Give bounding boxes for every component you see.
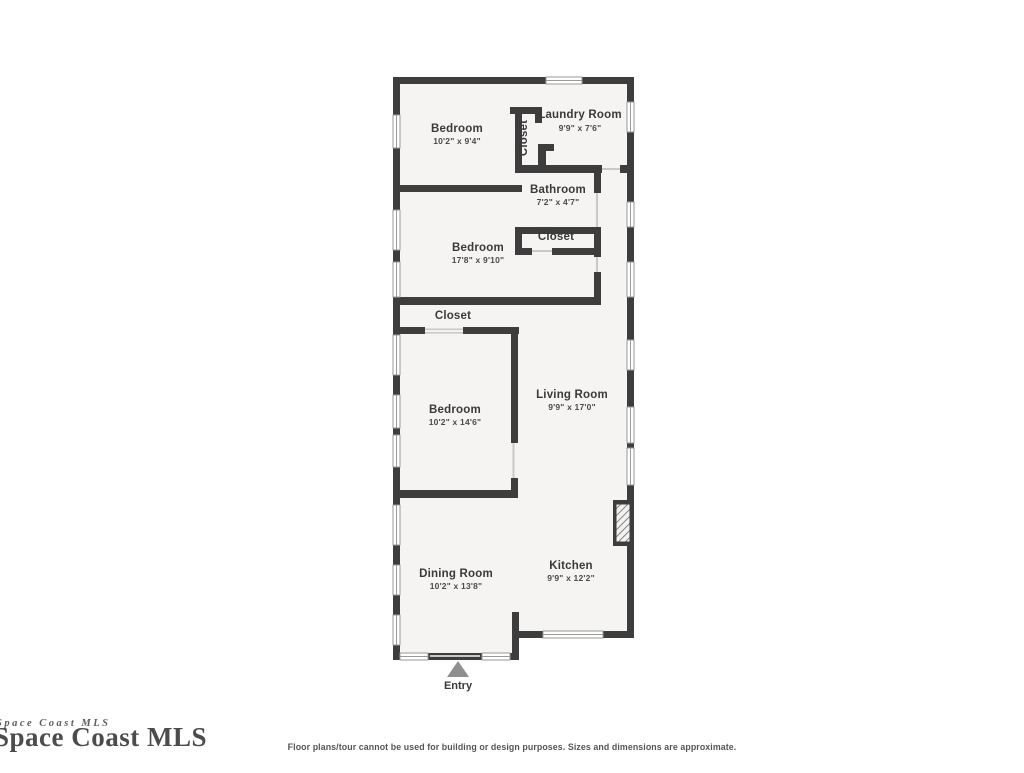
door-entry-threshold: [430, 655, 480, 657]
door-bedroom3: [513, 443, 515, 478]
wall-bed2-bottom: [393, 297, 601, 305]
window: [627, 102, 634, 132]
window: [393, 565, 400, 595]
window: [627, 448, 634, 485]
wall-bathroom-top-stub: [620, 165, 634, 173]
door-bed3-closet-a: [425, 329, 463, 331]
room-dims-bedroom1: 10'2" x 9'4": [433, 136, 481, 146]
wall-hallcloset-bottom-a: [515, 248, 532, 255]
room-label-bedroom3: Bedroom: [429, 404, 481, 416]
room-label-living: Living Room: [536, 389, 608, 401]
room-dims-living: 9'9" x 17'0": [548, 402, 596, 412]
window: [482, 653, 510, 660]
room-label-bathroom: Bathroom: [530, 184, 586, 196]
window: [627, 340, 634, 370]
window: [393, 262, 400, 297]
room-label-dining: Dining Room: [419, 568, 493, 580]
window: [627, 202, 634, 227]
wall-bed3-bottom: [393, 490, 518, 498]
disclaimer-text: Floor plans/tour cannot be used for buil…: [0, 742, 1024, 752]
window: [393, 115, 400, 148]
wall-dining-kitchen-divider: [512, 612, 519, 660]
wall-hall-right-a: [594, 227, 601, 257]
window: [393, 395, 400, 428]
window: [393, 615, 400, 645]
floor-plan-canvas: Bedroom 10'2" x 9'4" Laundry Room 9'9" x…: [0, 0, 1024, 768]
room-label-bed3-closet: Closet: [435, 310, 471, 322]
room-dims-bedroom2: 17'8" x 9'10": [452, 255, 505, 265]
room-dims-bedroom3: 10'2" x 14'6": [429, 417, 482, 427]
room-label-kitchen: Kitchen: [549, 560, 593, 572]
door-bed3-closet-b: [425, 332, 463, 334]
door-laundry: [602, 168, 620, 170]
room-dims-kitchen: 9'9" x 12'2": [547, 573, 595, 583]
wall-top: [393, 77, 634, 84]
window: [393, 335, 400, 375]
window: [627, 262, 634, 297]
window: [393, 435, 400, 467]
wall-bathroom-right: [594, 165, 601, 193]
window: [627, 407, 634, 443]
room-label-bedroom1: Bedroom: [431, 123, 483, 135]
room-label-laundry: Laundry Room: [538, 109, 622, 121]
floor-plan-page: Bedroom 10'2" x 9'4" Laundry Room 9'9" x…: [0, 0, 1024, 768]
entry-label: Entry: [444, 680, 473, 692]
room-label-laundry-closet: Closet: [518, 120, 530, 156]
window: [393, 505, 400, 545]
room-dims-bathroom: 7'2" x 4'7": [537, 197, 580, 207]
window: [393, 210, 400, 250]
window: [400, 653, 428, 660]
entry-arrow-icon: [447, 661, 469, 677]
wall-bathroom-top: [515, 165, 602, 173]
window: [543, 631, 603, 638]
door-hall-closet: [532, 250, 552, 252]
room-label-hall-closet: Closet: [538, 231, 574, 243]
wall-bed3-right-a: [511, 327, 518, 443]
door-bedroom2: [596, 257, 598, 272]
wall-bed3closet-bottom-a: [393, 327, 425, 334]
wall-bed3closet-bottom-b: [463, 327, 519, 334]
wall-hallcloset-bottom-b: [552, 248, 601, 255]
room-dims-laundry: 9'9" x 7'6": [559, 123, 602, 133]
room-label-bedroom2: Bedroom: [452, 242, 504, 254]
room-dims-dining: 10'2" x 13'8": [430, 581, 483, 591]
door-bathroom: [596, 193, 598, 227]
wall-bed1-bed2-divider: [393, 185, 522, 192]
window: [546, 77, 582, 84]
fireplace: [613, 500, 633, 546]
